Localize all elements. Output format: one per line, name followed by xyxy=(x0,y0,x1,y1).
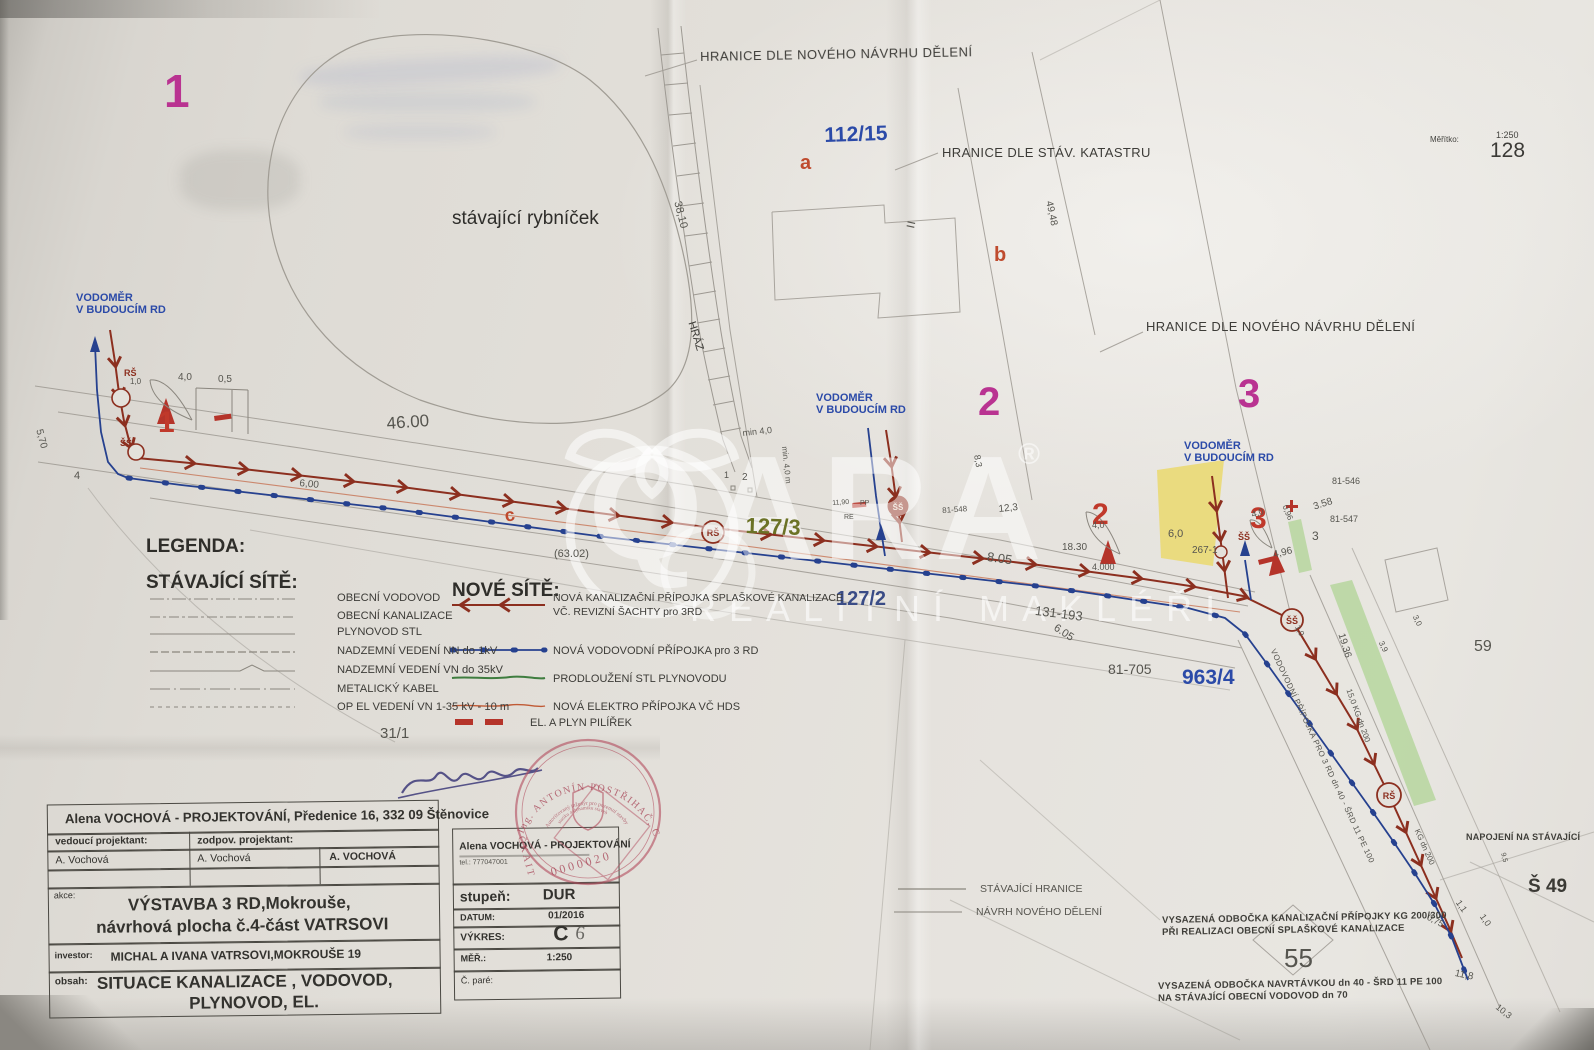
parcel-55: 55 xyxy=(1284,944,1313,973)
vodomer-left-line2: V BUDOUCÍM RD xyxy=(76,304,166,316)
obsah-line2: PLYNOVOD, EL. xyxy=(189,992,319,1014)
legend-new-item-vodovod: NOVÁ VODOVODNÍ PŘÍPOJKA pro 3 RD xyxy=(553,645,758,657)
role1-label: vedoucí projektant: xyxy=(55,835,147,847)
vodomer-mid-line2: V BUDOUCÍM RD xyxy=(816,404,906,416)
mer-label: MĚŘ.: xyxy=(461,953,487,963)
pare-label: Č. paré: xyxy=(461,975,493,985)
sheet-number: 128 xyxy=(1490,139,1525,163)
svg-text:Ing. ANTONÍN POSTŘIHAČ, CSc.: Ing. ANTONÍN POSTŘIHAČ, CSc. xyxy=(380,715,662,839)
dim-pp: PP xyxy=(860,500,869,508)
obsah-label: obsah: xyxy=(55,976,88,987)
legend-boundary-new: NÁVRH NOVÉHO DĚLENÍ xyxy=(976,907,1102,919)
plot-number-1-magenta: 1 xyxy=(164,66,190,118)
vodomer-label-mid: VODOMĚR V BUDOUCÍM RD xyxy=(816,392,906,417)
scale-label: Měřítko: xyxy=(1430,136,1459,145)
legend-boundary-existing: STÁVAJÍCÍ HRANICE xyxy=(980,884,1083,896)
parcel-81-548: 81-548 xyxy=(942,505,967,516)
vodomer-label-right: VODOMĚR V BUDOUCÍM RD xyxy=(1184,440,1274,465)
dim-46-00: 46.00 xyxy=(386,411,430,433)
dim-3: 3 xyxy=(1312,530,1319,543)
parcel-81-546: 81-546 xyxy=(1332,476,1360,486)
corner-number-1: 1 xyxy=(724,470,729,480)
legend-existing-item-nn: NADZEMNÍ VEDENÍ NN do 1kV xyxy=(337,645,497,658)
dim-6-0: 6,0 xyxy=(1168,528,1183,540)
letter-b: b xyxy=(994,244,1006,266)
legend-new-item-elektro: NOVÁ ELEKTRO PŘÍPOJKA VČ HDS xyxy=(553,701,740,713)
dim-re: RE xyxy=(844,514,854,522)
vodomer-right-line1: VODOMĚR xyxy=(1184,440,1274,452)
stamp-and-signature: Ing. ANTONÍN POSTŘIHAČ, CSc. Autorizovan… xyxy=(380,715,690,905)
legend-existing-item-op-el: OP EL VEDENÍ VN 1-35 kV - 10 m xyxy=(337,701,509,714)
plot-number-3-magenta: 3 xyxy=(1238,372,1260,417)
plot-number-1-red: 1 xyxy=(158,406,175,440)
boundary-label-right: HRANICE DLE NOVÉHO NÁVRHU DĚLENÍ xyxy=(1146,320,1415,335)
dim-12-3: 12,3 xyxy=(998,502,1019,515)
corner-number-2: 2 xyxy=(742,472,748,483)
role2-label: zodpov. projektant: xyxy=(197,833,293,846)
empty-divider-1 xyxy=(190,868,191,886)
dim-11-90: 11,90 xyxy=(832,499,850,508)
stamp-text: Ing. ANTONÍN POSTŘIHAČ, CSc. Autorizovan… xyxy=(380,715,662,879)
shaft-ss-right-label: ŠŠ xyxy=(1238,532,1250,542)
parcel-267-1: 267-1 xyxy=(1192,545,1218,556)
legend-new-title: NOVÉ SÍTĚ: xyxy=(452,580,560,601)
gas-extension-band-small xyxy=(1288,519,1312,573)
plot-number-2-magenta: 2 xyxy=(978,380,1000,425)
vykres-value: C xyxy=(553,922,568,946)
dim-4-000: 4.000 xyxy=(1092,562,1115,572)
legend-new-item-kanalizace: NOVÁ KANALIZAČNÍ PŘÍPOJKA SPLAŠKOVÉ KANA… xyxy=(553,592,843,619)
datum-label: DATUM: xyxy=(460,912,495,922)
empty-divider-2 xyxy=(319,866,320,884)
signature xyxy=(398,768,542,798)
dim-4: 4 xyxy=(74,470,80,482)
dim-4-0-mid: 4,0 xyxy=(1092,520,1105,530)
legend-existing-title: STÁVAJÍCÍ SÍTĚ: xyxy=(146,572,298,593)
parcel-127-3: 127/3 xyxy=(745,514,801,541)
legend-title: LEGENDA: xyxy=(146,536,245,557)
svg-text:Autorizovaný inženýr pro pozem: Autorizovaný inženýr pro pozemní stavby xyxy=(545,801,630,829)
legend-new-item-plynovod: PRODLOUŽENÍ STL PLYNOVODU xyxy=(553,673,727,685)
scanned-site-plan: RŠ ŠŠ ŠŠ RŠ xyxy=(0,0,1594,1050)
shaft-ss-left-label: ŠŠ xyxy=(120,438,132,448)
dim-0-5: 0,5 xyxy=(218,374,232,385)
parcel-59: 59 xyxy=(1474,638,1492,656)
dim-6-00: 6,00 xyxy=(299,478,320,491)
akce-line2: návrhová plocha č.4-část VATRSOVI xyxy=(96,914,388,938)
akce-line1: VÝSTAVBA 3 RD,Mokrouše, xyxy=(128,893,351,916)
svg-text:0000020: 0000020 xyxy=(549,848,613,879)
parcel-963-4: 963/4 xyxy=(1182,666,1235,690)
letter-a: a xyxy=(800,152,811,174)
legend-existing-item-plynovod: PLYNOVOD STL xyxy=(337,626,422,639)
vodomer-left-line1: VODOMĚR xyxy=(76,292,166,304)
dim-63-02: (63.02) xyxy=(554,548,589,560)
note-napojeni: NAPOJENÍ NA STÁVAJÍCÍ xyxy=(1466,832,1580,842)
dim-8-3: 8,3 xyxy=(972,454,984,468)
names-divider-1 xyxy=(189,849,190,868)
vodomer-mid-line1: VODOMĚR xyxy=(816,392,906,404)
dim-1-0-left: 1,0 xyxy=(130,378,141,387)
dam-hraz xyxy=(658,26,752,472)
parcel-127-2: 127/2 xyxy=(836,588,886,610)
parcel-s49: Š 49 xyxy=(1528,876,1567,897)
legend-existing-item-kanalizace: OBECNÍ KANALIZACE xyxy=(337,610,453,623)
roles-divider xyxy=(189,832,190,849)
svg-text:RŠ: RŠ xyxy=(1383,790,1396,801)
parcel-81-547: 81-547 xyxy=(1330,514,1358,524)
legend-existing-item-vn: NADZEMNÍ VEDENÍ VN do 35kV xyxy=(337,664,503,677)
watermark-reg: ® xyxy=(1018,438,1040,472)
mer-value: 1:250 xyxy=(547,952,573,963)
names-divider-2 xyxy=(319,847,320,866)
vodomer-label-left: VODOMĚR V BUDOUCÍM RD xyxy=(76,292,166,317)
dim-18-30: 18.30 xyxy=(1062,542,1087,553)
vodomer-right-line2: V BUDOUCÍM RD xyxy=(1184,452,1274,464)
investor-label: investor: xyxy=(55,950,93,960)
dim-4-0-left: 4,0 xyxy=(178,372,192,383)
vykres-label: VÝKRES: xyxy=(460,932,505,944)
watermark-brand: QARA xyxy=(588,424,1048,594)
svg-text:ČKAIT: ČKAIT xyxy=(515,835,538,880)
projectant-name-2: A. Vochová xyxy=(197,852,250,865)
boundary-label-katastr: HRANICE DLE STÁV. KATASTRU xyxy=(942,146,1151,161)
legend-existing-item-kabel: METALICKÝ KABEL xyxy=(337,683,439,696)
parcel-81-705: 81-705 xyxy=(1108,662,1152,678)
legend-existing-item-vodovod: OBECNÍ VODOVOD xyxy=(337,592,440,605)
obsah-line1: SITUACE KANALIZACE , VODOVOD, xyxy=(97,970,393,994)
svg-text:ŠŠ: ŠŠ xyxy=(1286,615,1298,626)
datum-value: 01/2016 xyxy=(548,910,584,921)
projectant-name-1: A. Vochová xyxy=(55,854,108,867)
akce-label: akce: xyxy=(54,890,76,900)
parcel-112-15: 112/15 xyxy=(824,122,888,148)
pond-label: stávající rybníček xyxy=(452,208,599,229)
